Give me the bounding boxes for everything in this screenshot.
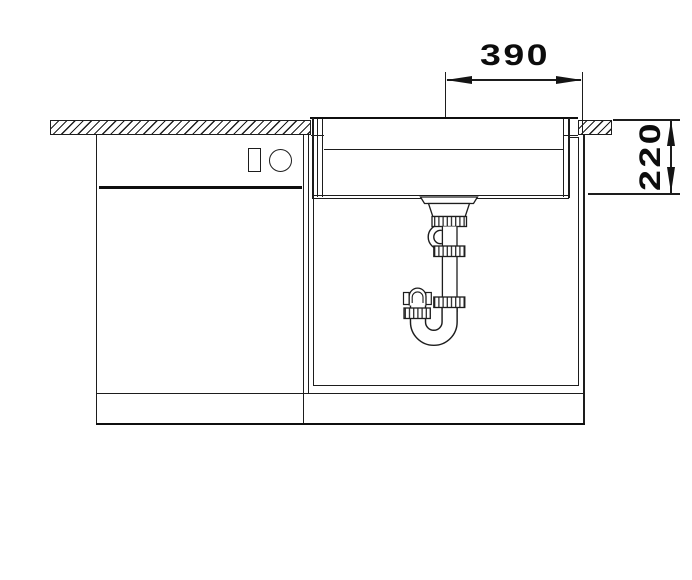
sink-right-wall-outer: [568, 118, 569, 198]
riser-nut-4: [404, 308, 430, 319]
dim-220-label: 220: [636, 110, 666, 203]
sink-rim-line: [310, 117, 578, 119]
dim-390-label: 390: [434, 41, 597, 71]
control-dial-icon: [269, 149, 292, 172]
drain-trap-assembly: [395, 192, 481, 352]
sink-flange-stub-left: [311, 135, 324, 136]
dim-390-arrow-right: [556, 76, 582, 84]
control-display-icon: [248, 148, 261, 172]
appliance-left-wall: [96, 135, 97, 424]
dim-220-extension-bottom: [588, 193, 680, 194]
base-cabinet-left-wall: [308, 135, 309, 393]
drain-nut-1: [432, 217, 467, 227]
dim-220-arrow-up: [667, 120, 675, 146]
sink-left-wall-inner: [322, 119, 323, 197]
worktop-right-hatch: [578, 120, 612, 135]
pipe-nut-3: [434, 297, 465, 308]
appliance-handle-line: [99, 186, 302, 189]
cabinet-bottom-line: [96, 393, 585, 394]
worktop-left-hatch: [50, 120, 311, 135]
sink-left-wall-mid: [317, 119, 318, 197]
dim-390-arrow-left: [446, 76, 472, 84]
elbow-tab-left: [404, 293, 410, 305]
plinth-bottom-line: [96, 423, 585, 425]
sink-bowl-body: [311, 116, 570, 199]
installation-diagram: 390 220: [0, 0, 692, 580]
pipe-nut-2: [434, 246, 465, 257]
base-cabinet-right-wall: [583, 135, 585, 424]
strainer-flange: [421, 197, 478, 204]
dim-220-arrow-down: [667, 167, 675, 193]
sink-ledge-line: [324, 149, 563, 150]
sink-left-wall-outer: [312, 118, 313, 198]
sink-flange-stub-right: [563, 135, 578, 136]
strainer-cup: [429, 204, 470, 217]
sink-right-wall-inner: [563, 119, 564, 197]
appliance-right-wall: [303, 135, 304, 424]
